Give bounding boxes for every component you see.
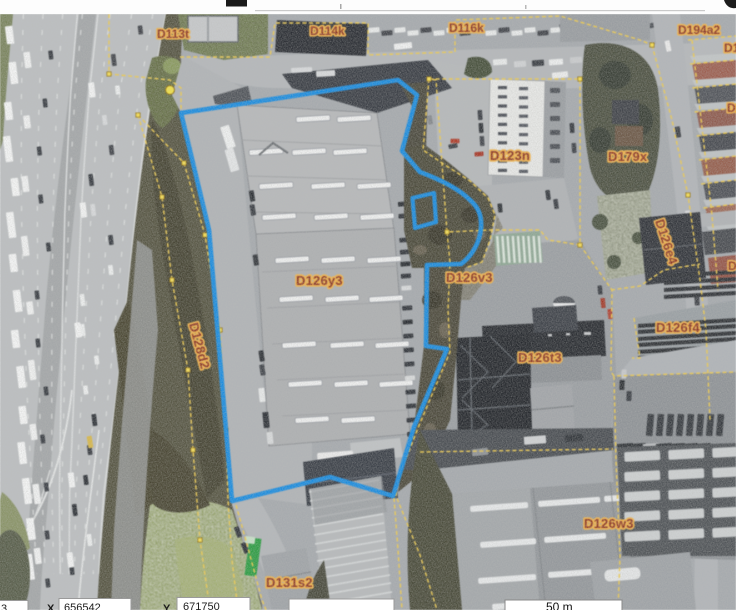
svg-text:671750: 671750 [183,601,220,610]
svg-text:656542: 656542 [64,602,101,610]
svg-text:50 m: 50 m [546,600,573,610]
svg-text:Y: Y [163,603,171,610]
svg-text:X: X [47,603,55,610]
svg-text:3: 3 [1,603,7,610]
